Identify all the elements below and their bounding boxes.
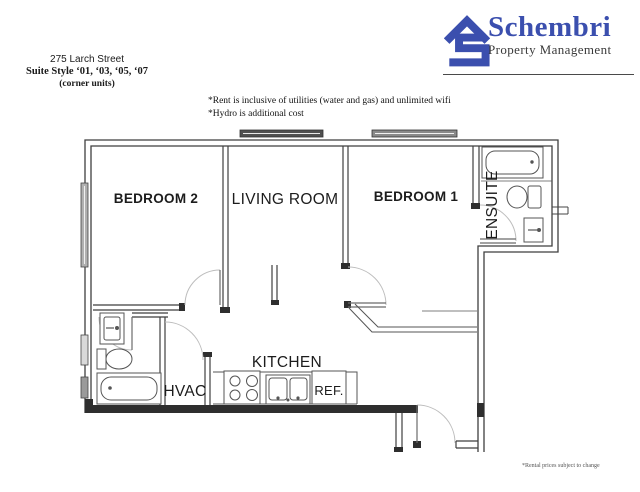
label-hvac: HVAC [163, 383, 206, 400]
bathroom-toilet-tank [97, 349, 106, 369]
label-ensuite: ENSUITE [484, 170, 501, 239]
left-window-lower [81, 335, 88, 365]
left-window-bottom [81, 377, 88, 398]
label-kitchen: KITCHEN [252, 354, 322, 371]
label-living-room: LIVING ROOM [232, 191, 339, 208]
right-window [552, 207, 568, 214]
angled-ledge [349, 304, 477, 332]
label-bedroom1: BEDROOM 1 [374, 189, 459, 204]
main-bathroom-fixtures [97, 313, 161, 404]
bathroom-toilet-bowl [106, 349, 132, 369]
ensuite-toilet-bowl [507, 186, 527, 208]
disclaimer-text: *Rental prices subject to change [522, 463, 600, 469]
ensuite-toilet-tank [528, 186, 541, 208]
floorplan-drawing: BEDROOM 2 LIVING ROOM BEDROOM 1 ENSUITE … [0, 0, 640, 492]
label-bedroom2: BEDROOM 2 [114, 191, 198, 206]
label-ref: REF. [314, 383, 343, 398]
floorplan-page: 275 Larch Street Suite Style ‘01, ‘03, ‘… [0, 0, 640, 492]
